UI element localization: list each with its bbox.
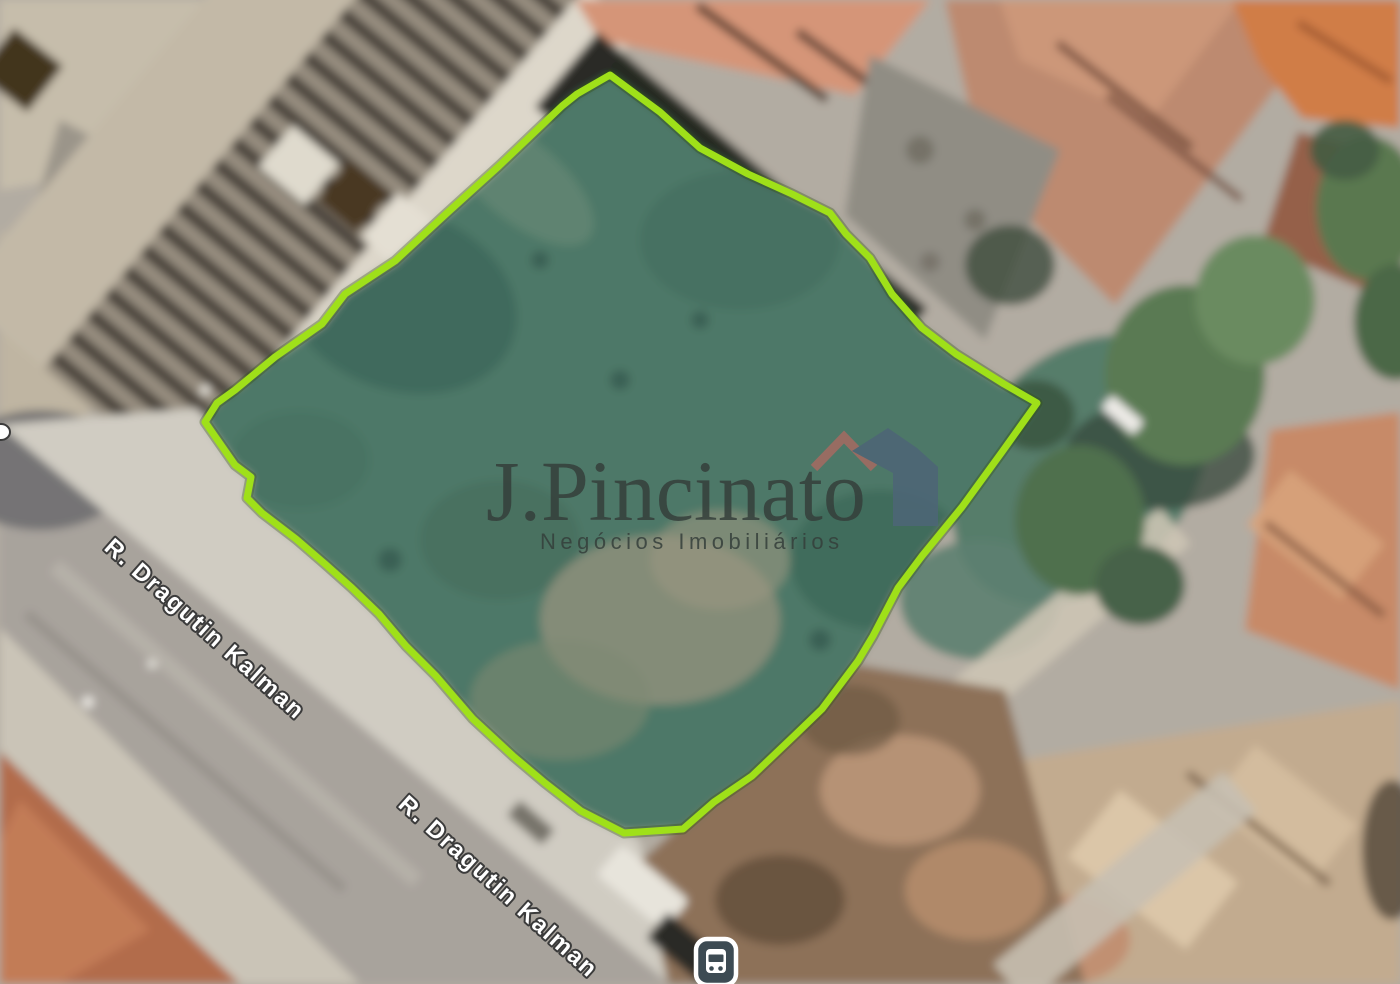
watermark-tagline: Negócios Imobiliários xyxy=(540,529,844,554)
watermark-brand: J.Pincinato xyxy=(486,443,866,539)
bus-stop-icon[interactable] xyxy=(696,939,736,984)
satellite-map-view: R. Dragutin Kalman R. Dragutin Kalman J.… xyxy=(0,0,1400,984)
bus-glyph xyxy=(706,949,726,973)
street-label-fragment xyxy=(0,424,10,440)
